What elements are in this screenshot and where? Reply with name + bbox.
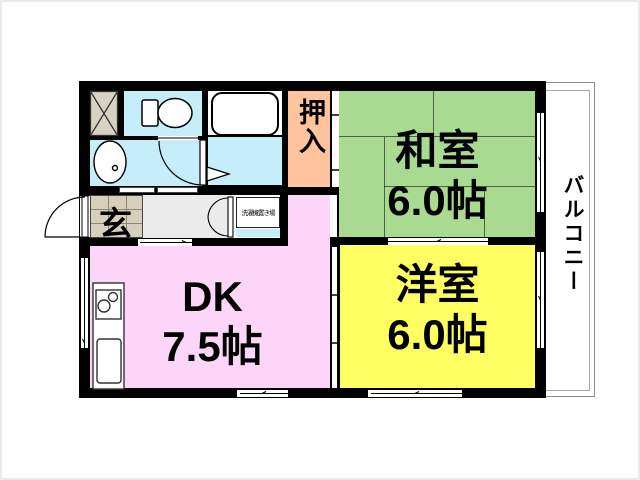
window-washitsu-balcony (537, 113, 544, 212)
laundry-water-strip (236, 229, 280, 237)
dk-size: 7.5帖 (95, 322, 330, 372)
balcony-label: バルコニー (557, 174, 587, 339)
washroom-door-panel (119, 187, 155, 193)
genkan-label: 玄 (99, 197, 132, 245)
dk-label: DK 7.5帖 (95, 272, 330, 372)
room-toilet (124, 91, 202, 136)
yoshitsu-label: 洋室 6.0帖 (340, 260, 535, 360)
room-dk-notch (288, 195, 330, 246)
entrance-opening (80, 196, 90, 237)
window-yoshitsu-balcony (537, 252, 544, 348)
floor-plan: バルコニー 洗濯機置き場 (0, 0, 640, 480)
toilet-door-opening (158, 136, 198, 140)
window-yoshitsu-bottom (368, 390, 462, 397)
dk-yoshitsu-sliding-door (331, 247, 338, 388)
sliding-door-hall-dk (138, 239, 192, 246)
storage-box (90, 91, 118, 136)
fusuma-door (332, 91, 339, 187)
sliding-door-washitsu-yoshitsu (388, 238, 488, 245)
oshiire-label: 押入 (292, 98, 328, 188)
yoshitsu-size: 6.0帖 (340, 310, 535, 360)
window-dk-bottom (237, 390, 288, 397)
room-washroom (90, 140, 202, 186)
window-dk-left (81, 258, 88, 348)
washitsu-label: 和室 6.0帖 (339, 126, 536, 226)
washing-machine-space: 洗濯機置き場 (236, 197, 280, 228)
washroom-door-panel (157, 187, 198, 193)
yoshitsu-name: 洋室 (340, 260, 535, 310)
hallway (143, 195, 232, 238)
washing-machine-label: 洗濯機置き場 (241, 208, 274, 217)
washitsu-size: 6.0帖 (339, 176, 536, 226)
washitsu-name: 和室 (339, 126, 536, 176)
dk-name: DK (95, 272, 330, 322)
dk-washitsu-door (330, 195, 337, 237)
room-bath-tub-area (208, 91, 282, 135)
room-bath-floor (208, 137, 282, 185)
